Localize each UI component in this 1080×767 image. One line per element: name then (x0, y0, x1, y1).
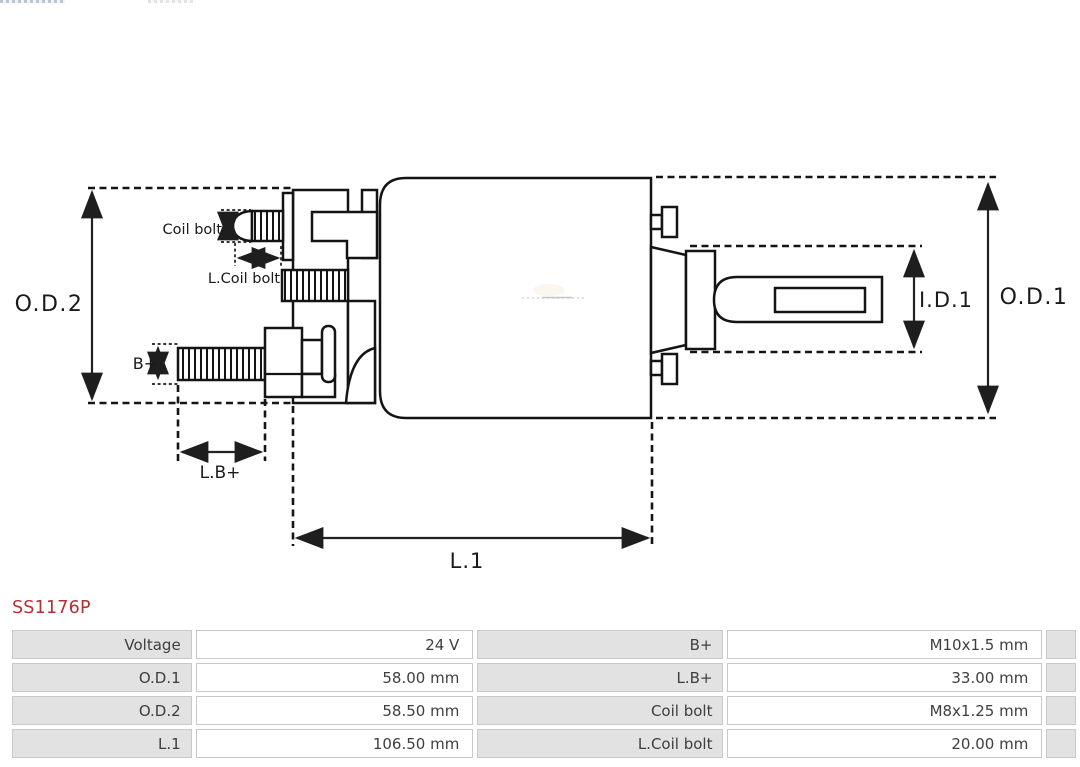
spec-label-cell-cutoff (1046, 696, 1076, 725)
label-l1: L.1 (450, 549, 485, 573)
spec-label-cell: O.D.1 (12, 663, 192, 692)
watermark (533, 284, 565, 296)
spec-value-cell: 24 V (196, 630, 474, 659)
spec-value-cell: M10x1.5 mm (727, 630, 1042, 659)
spec-label-cell-cutoff (1046, 663, 1076, 692)
coil-terminal-threads (282, 270, 348, 301)
spec-value-cell: 58.00 mm (196, 663, 474, 692)
spec-row-od2: O.D.2 58.50 mm Coil bolt M8x1.25 mm (12, 696, 1076, 725)
coil-bolt-terminal (233, 211, 283, 241)
spec-row-l1: L.1 106.50 mm L.Coil bolt 20.00 mm (12, 729, 1076, 758)
spec-value-cell: M8x1.25 mm (727, 696, 1042, 725)
label-lb-plus: L.B+ (200, 463, 241, 483)
label-od2: O.D.2 (15, 292, 84, 317)
spec-value-cell: 106.50 mm (196, 729, 474, 758)
plunger-shaft (651, 247, 882, 353)
spec-label-cell-cutoff (1046, 729, 1076, 758)
label-coil-bolt: Coil bolt (163, 222, 223, 238)
spec-value-cell: 58.50 mm (196, 696, 474, 725)
product-spec-page: { "part_number": "SS1176P", "diagram": {… (0, 0, 1080, 767)
part-number[interactable]: SS1176P (12, 598, 91, 618)
spec-table: Voltage 24 V B+ M10x1.5 mm O.D.1 58.00 m… (8, 626, 1080, 762)
spec-row-voltage: Voltage 24 V B+ M10x1.5 mm (12, 630, 1076, 659)
spec-label-cell: Voltage (12, 630, 192, 659)
spec-label-cell: L.1 (12, 729, 192, 758)
spec-value-cell: 20.00 mm (727, 729, 1042, 758)
spec-value-cell: 33.00 mm (727, 663, 1042, 692)
label-l-coil-bolt: L.Coil bolt (208, 271, 280, 287)
label-od1: O.D.1 (1000, 285, 1069, 310)
solenoid-body (380, 178, 651, 418)
label-b-plus: B+ (133, 354, 157, 373)
spec-label-cell: O.D.2 (12, 696, 192, 725)
plunger-slot (775, 288, 865, 312)
spec-label-cell-cutoff (1046, 630, 1076, 659)
spec-row-od1: O.D.1 58.00 mm L.B+ 33.00 mm (12, 663, 1076, 692)
label-id1: I.D.1 (919, 288, 973, 312)
spec-label-cell: L.B+ (477, 663, 723, 692)
spec-label-cell: L.Coil bolt (477, 729, 723, 758)
spec-label-cell: Coil bolt (477, 696, 723, 725)
spec-label-cell: B+ (477, 630, 723, 659)
solenoid-technical-diagram: O.D.2 O.D.1 I.D.1 L.1 L.B+ B+ Coil bolt … (0, 0, 1080, 592)
